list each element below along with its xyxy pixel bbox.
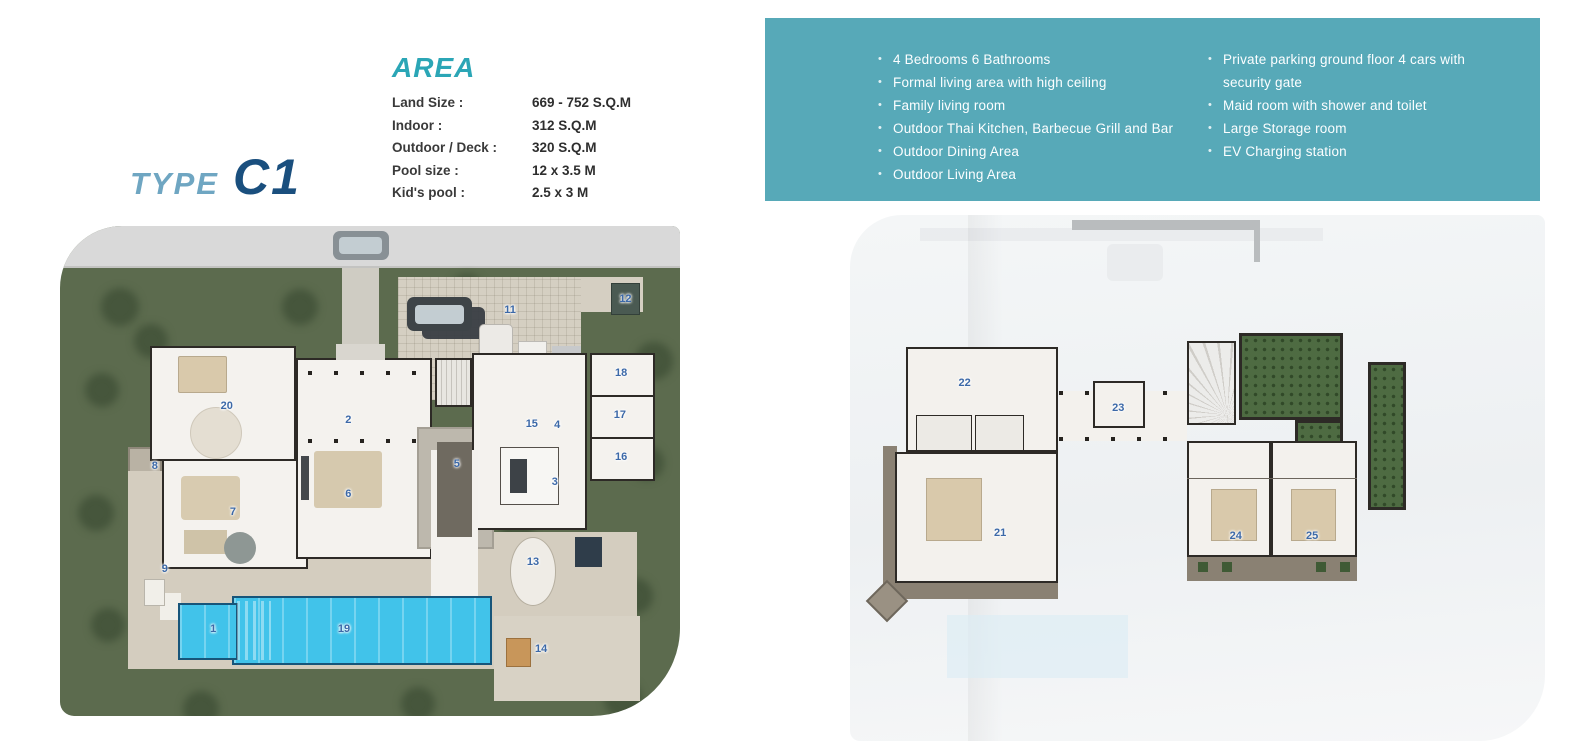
room-number-label: 22 [959, 377, 971, 389]
bed-furniture [178, 356, 228, 393]
feature-item: Outdoor Thai Kitchen, Barbecue Grill and… [877, 117, 1197, 140]
bathroom [916, 415, 972, 451]
room-number-label: 3 [552, 476, 558, 488]
feature-item: 4 Bedrooms 6 Bathrooms [877, 48, 1197, 71]
room-number-label: 14 [535, 643, 547, 655]
room-number-label: 25 [1306, 530, 1318, 542]
outdoor-dining-table [510, 537, 557, 606]
pool-steps [237, 601, 271, 660]
colonnade [308, 371, 420, 375]
room-number-label: 7 [230, 506, 236, 518]
car-glass [415, 305, 465, 324]
sun-lounger [144, 579, 166, 606]
area-spec-row: Land Size : 669 - 752 S.Q.M [392, 92, 692, 115]
room-number-label: 18 [615, 367, 627, 379]
dining-table-furniture [437, 442, 472, 538]
bar-counter [575, 537, 603, 566]
area-panel: AREA Land Size : 669 - 752 S.Q.M Indoor … [392, 52, 692, 205]
spec-value: 12 x 3.5 M [532, 160, 596, 183]
title-type-word: TYPE [130, 166, 219, 202]
feature-item: Private parking ground floor 4 cars with… [1207, 48, 1469, 94]
feature-list-left: 4 Bedrooms 6 Bathrooms Formal living are… [877, 48, 1197, 186]
colonnade [1059, 437, 1188, 441]
area-spec-row: Indoor : 312 S.Q.M [392, 115, 692, 138]
room-number-label: 23 [1112, 402, 1124, 414]
sofa-furniture [184, 530, 227, 555]
ground-floor-plan: 1 2 3 4 5 6 7 8 9 11 12 13 [60, 226, 680, 716]
area-spec-row: Pool size : 12 x 3.5 M [392, 160, 692, 183]
planter-icon [1198, 562, 1208, 572]
wall [590, 395, 655, 397]
staircase [435, 358, 472, 407]
room-number-label: 1 [210, 623, 216, 635]
feature-item: Large Storage room [1207, 117, 1469, 140]
room-number-label: 16 [615, 451, 627, 463]
balcony [1187, 557, 1357, 581]
spec-value: 312 S.Q.M [532, 115, 597, 138]
wall [590, 437, 655, 439]
room-number-label: 12 [619, 293, 631, 305]
feature-list-right: Private parking ground floor 4 cars with… [1207, 48, 1469, 163]
feature-item: Outdoor Living Area [877, 163, 1197, 186]
feature-item: Family living room [877, 94, 1197, 117]
area-spec-row: Kid's pool : 2.5 x 3 M [392, 182, 692, 205]
spec-label: Pool size : [392, 160, 532, 183]
spec-label: Indoor : [392, 115, 532, 138]
green-roof-garden [1368, 362, 1406, 509]
kitchen-island [500, 447, 559, 506]
spec-value: 669 - 752 S.Q.M [532, 92, 631, 115]
room-number-label: 13 [527, 556, 539, 568]
driveway [342, 268, 379, 354]
spec-value: 320 S.Q.M [532, 137, 597, 160]
area-heading: AREA [392, 52, 692, 84]
colonnade [308, 439, 420, 443]
entry-porch [336, 344, 386, 361]
kids-pool [178, 603, 238, 660]
spec-value: 2.5 x 3 M [532, 182, 588, 205]
bed-furniture [926, 478, 982, 541]
bathroom [975, 415, 1024, 451]
feature-item: Outdoor Dining Area [877, 140, 1197, 163]
ghost-pool-shape [947, 615, 1128, 678]
room-number-label: 5 [454, 458, 460, 470]
feature-item: Formal living area with high ceiling [877, 71, 1197, 94]
spec-label: Outdoor / Deck : [392, 137, 532, 160]
car-glass [339, 237, 381, 253]
page-title: TYPE C1 [130, 148, 301, 206]
room-number-label: 11 [504, 304, 516, 316]
tv-cabinet-furniture [301, 456, 308, 500]
title-model-word: C1 [233, 148, 301, 206]
spec-label: Land Size : [392, 92, 532, 115]
upper-floor-plan: 21 22 23 24 25 [850, 215, 1545, 741]
area-spec-row: Outdoor / Deck : 320 S.Q.M [392, 137, 692, 160]
room-number-label: 8 [152, 460, 158, 472]
room-number-label: 19 [338, 623, 350, 635]
room-number-label: 15 [526, 418, 538, 430]
wall [1187, 478, 1357, 479]
staircase [1187, 341, 1236, 425]
ghost-car-shape [1107, 244, 1163, 281]
room-number-label: 21 [994, 527, 1006, 539]
car-icon [407, 297, 472, 331]
roof-rail [1072, 220, 1260, 229]
room-number-label: 9 [162, 563, 168, 575]
car-icon [333, 231, 389, 260]
upper-deck [883, 583, 1058, 599]
room-number-label: 2 [345, 414, 351, 426]
room-number-label: 4 [554, 419, 560, 431]
room-number-label: 24 [1230, 530, 1242, 542]
feature-item: Maid room with shower and toilet [1207, 94, 1469, 117]
green-roof-garden [1239, 333, 1343, 420]
roof-rail [1254, 220, 1260, 262]
kitchen-counter [510, 459, 527, 493]
room-number-label: 6 [345, 488, 351, 500]
wall [1269, 441, 1272, 557]
spec-label: Kid's pool : [392, 182, 532, 205]
swimming-pool [232, 596, 492, 665]
thai-kitchen-bench [506, 638, 531, 667]
area-spec-list: Land Size : 669 - 752 S.Q.M Indoor : 312… [392, 92, 692, 205]
room-number-label: 20 [221, 400, 233, 412]
feature-banner: 4 Bedrooms 6 Bathrooms Formal living are… [765, 18, 1540, 201]
feature-item: EV Charging station [1207, 140, 1469, 163]
room-number-label: 17 [614, 409, 626, 421]
